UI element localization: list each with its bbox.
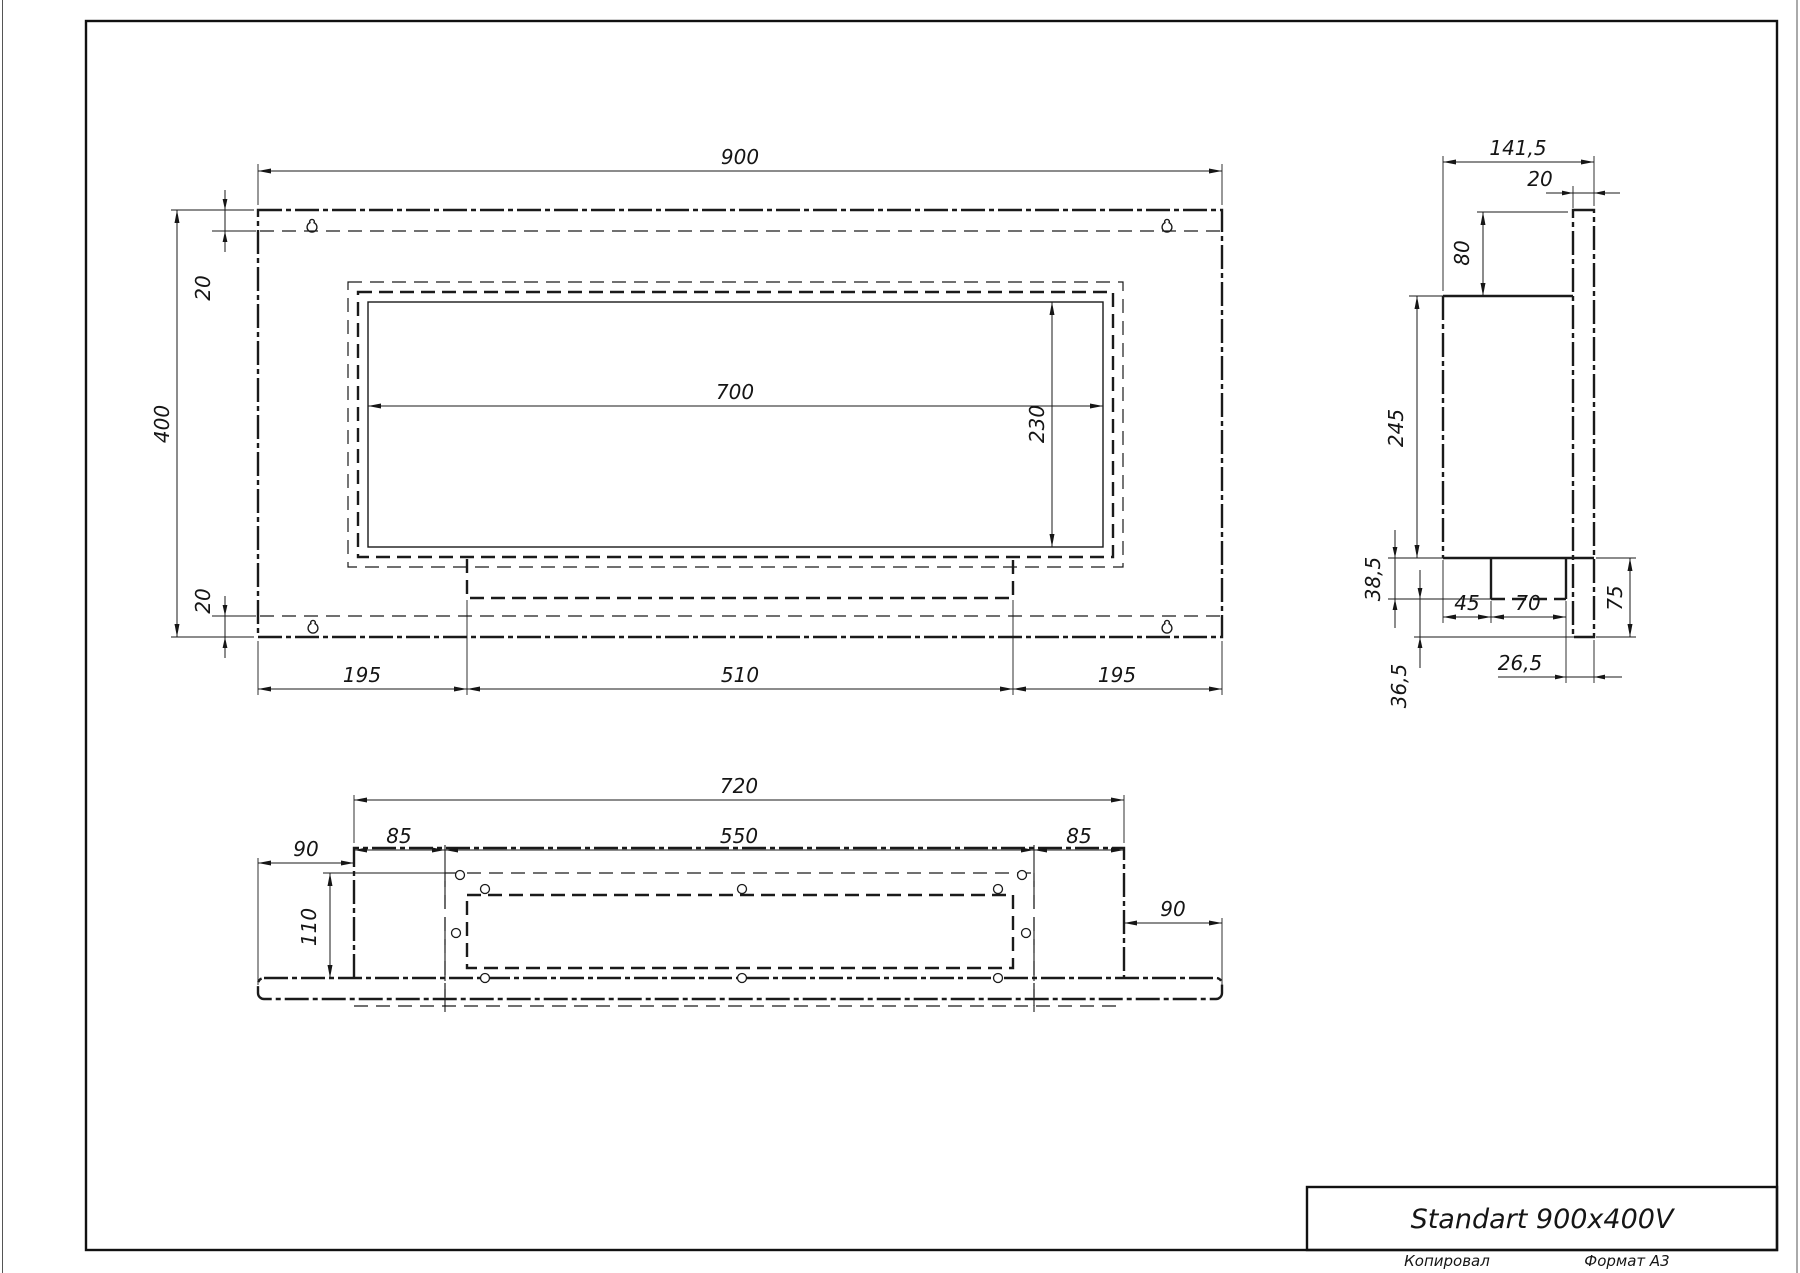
dim-tray-width: 70	[1515, 591, 1540, 615]
front-plate-outline	[258, 210, 1222, 637]
side-dimensions: 141,5 20 80 245 38,5 36,5 45 70	[1361, 136, 1630, 708]
dim-base-width: 720	[720, 774, 758, 798]
drawing-sheet: 900 400 20 20 700 230 195 510 195	[0, 0, 1800, 1273]
model-title: Standart 900x400V	[1411, 1204, 1676, 1235]
dim-front-height: 400	[150, 405, 174, 443]
drawing-canvas: 900 400 20 20 700 230 195 510 195	[0, 0, 1800, 1273]
dim-tray-offset: 45	[1454, 591, 1479, 615]
sheet-footer: Копировал Формат А3	[1404, 1252, 1670, 1270]
dim-top-inset: 80	[1450, 240, 1474, 265]
side-extension-lines	[1388, 156, 1636, 683]
dim-burner-width: 510	[721, 663, 759, 687]
dim-side-depth: 141,5	[1489, 136, 1546, 160]
dim-opening-height: 230	[1025, 405, 1049, 443]
opening-outer-frame	[348, 282, 1123, 567]
dim-front-bottom-offset: 20	[191, 588, 215, 613]
glass-opening	[368, 302, 1103, 547]
dim-plate-lower-height: 75	[1603, 585, 1627, 610]
bottom-view: 720 85 550 85 90 90 110	[258, 774, 1222, 1012]
dim-tray-inset: 26,5	[1498, 651, 1543, 675]
dim-plate-overhang-left: 90	[293, 837, 318, 861]
dim-base-depth: 110	[297, 908, 321, 946]
front-dimensions: 900 400 20 20 700 230 195 510 195	[150, 145, 1222, 689]
burner-opening-hidden	[467, 895, 1013, 968]
dim-opening-width: 700	[716, 380, 754, 404]
dim-front-top-offset: 20	[191, 275, 215, 300]
side-back-plate	[1573, 210, 1594, 637]
format-label: Формат А3	[1584, 1252, 1669, 1270]
front-view: 900 400 20 20 700 230 195 510 195	[150, 145, 1222, 695]
dim-flange-margin-right: 85	[1066, 824, 1091, 848]
bottom-body-outline	[354, 848, 1124, 978]
dim-bottom-margin-right: 195	[1098, 663, 1136, 687]
side-view: 141,5 20 80 245 38,5 36,5 45 70	[1361, 136, 1636, 708]
dim-bottom-margin-left: 195	[343, 663, 381, 687]
dim-side-body-height: 245	[1384, 409, 1408, 447]
dim-step-height: 38,5	[1361, 557, 1385, 602]
bottom-dimensions: 720 85 550 85 90 90 110	[258, 774, 1222, 978]
dim-front-width: 900	[721, 145, 759, 169]
copied-label: Копировал	[1404, 1252, 1490, 1270]
dim-flange-length: 550	[720, 824, 758, 848]
burner-bracket-hidden	[467, 559, 1013, 598]
title-block: Standart 900x400V	[1307, 1187, 1777, 1250]
dim-plate-overhang-right: 90	[1160, 897, 1185, 921]
dim-flange-margin-left: 85	[386, 824, 411, 848]
dim-back-plate-thickness: 20	[1527, 167, 1552, 191]
front-extension-lines	[171, 164, 1222, 695]
opening-hidden-frame	[358, 292, 1113, 557]
dim-lower-section-height: 36,5	[1387, 664, 1411, 709]
drawing-border	[86, 21, 1777, 1250]
screw-holes	[452, 871, 1031, 983]
